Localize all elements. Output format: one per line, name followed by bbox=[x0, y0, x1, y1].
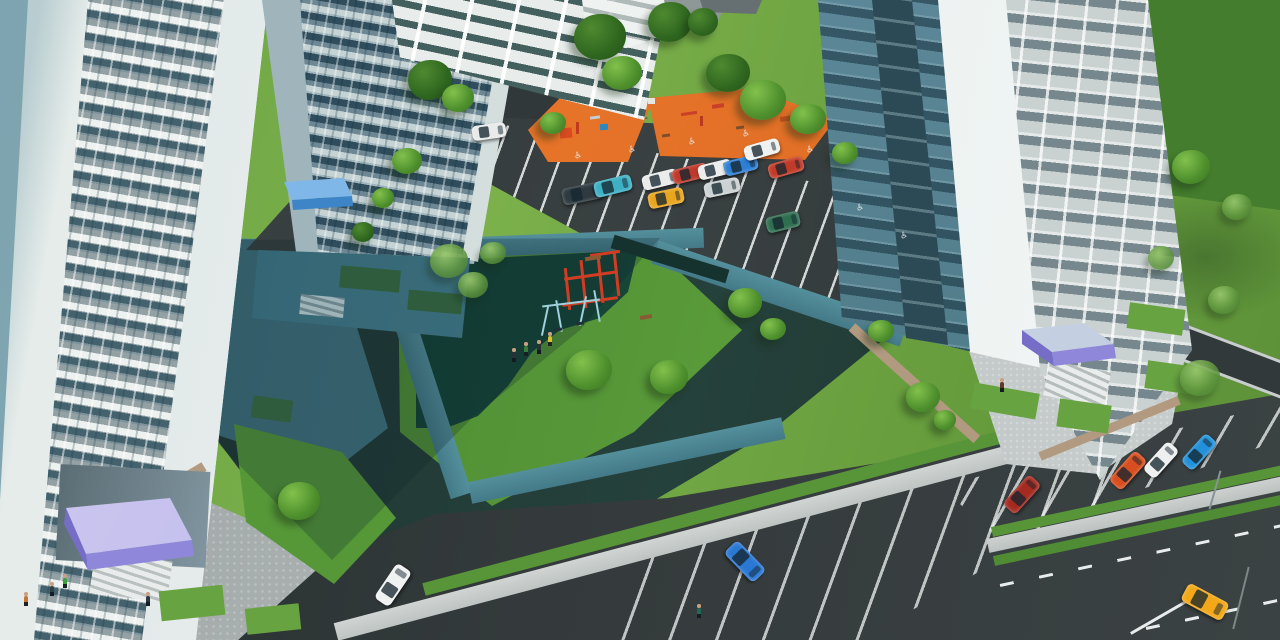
pedestrian bbox=[146, 596, 150, 606]
pedestrian bbox=[1000, 382, 1004, 392]
pedestrian bbox=[537, 344, 541, 354]
pedestrian bbox=[548, 336, 552, 346]
pedestrian bbox=[697, 608, 701, 618]
pedestrian bbox=[24, 596, 28, 606]
residential-complex-render: ♿♿♿♿♿♿♿ bbox=[0, 0, 1280, 640]
pedestrian bbox=[512, 352, 516, 362]
people-layer bbox=[0, 0, 1280, 640]
pedestrian bbox=[63, 578, 67, 588]
pedestrian bbox=[524, 346, 528, 356]
pedestrian bbox=[50, 586, 54, 596]
